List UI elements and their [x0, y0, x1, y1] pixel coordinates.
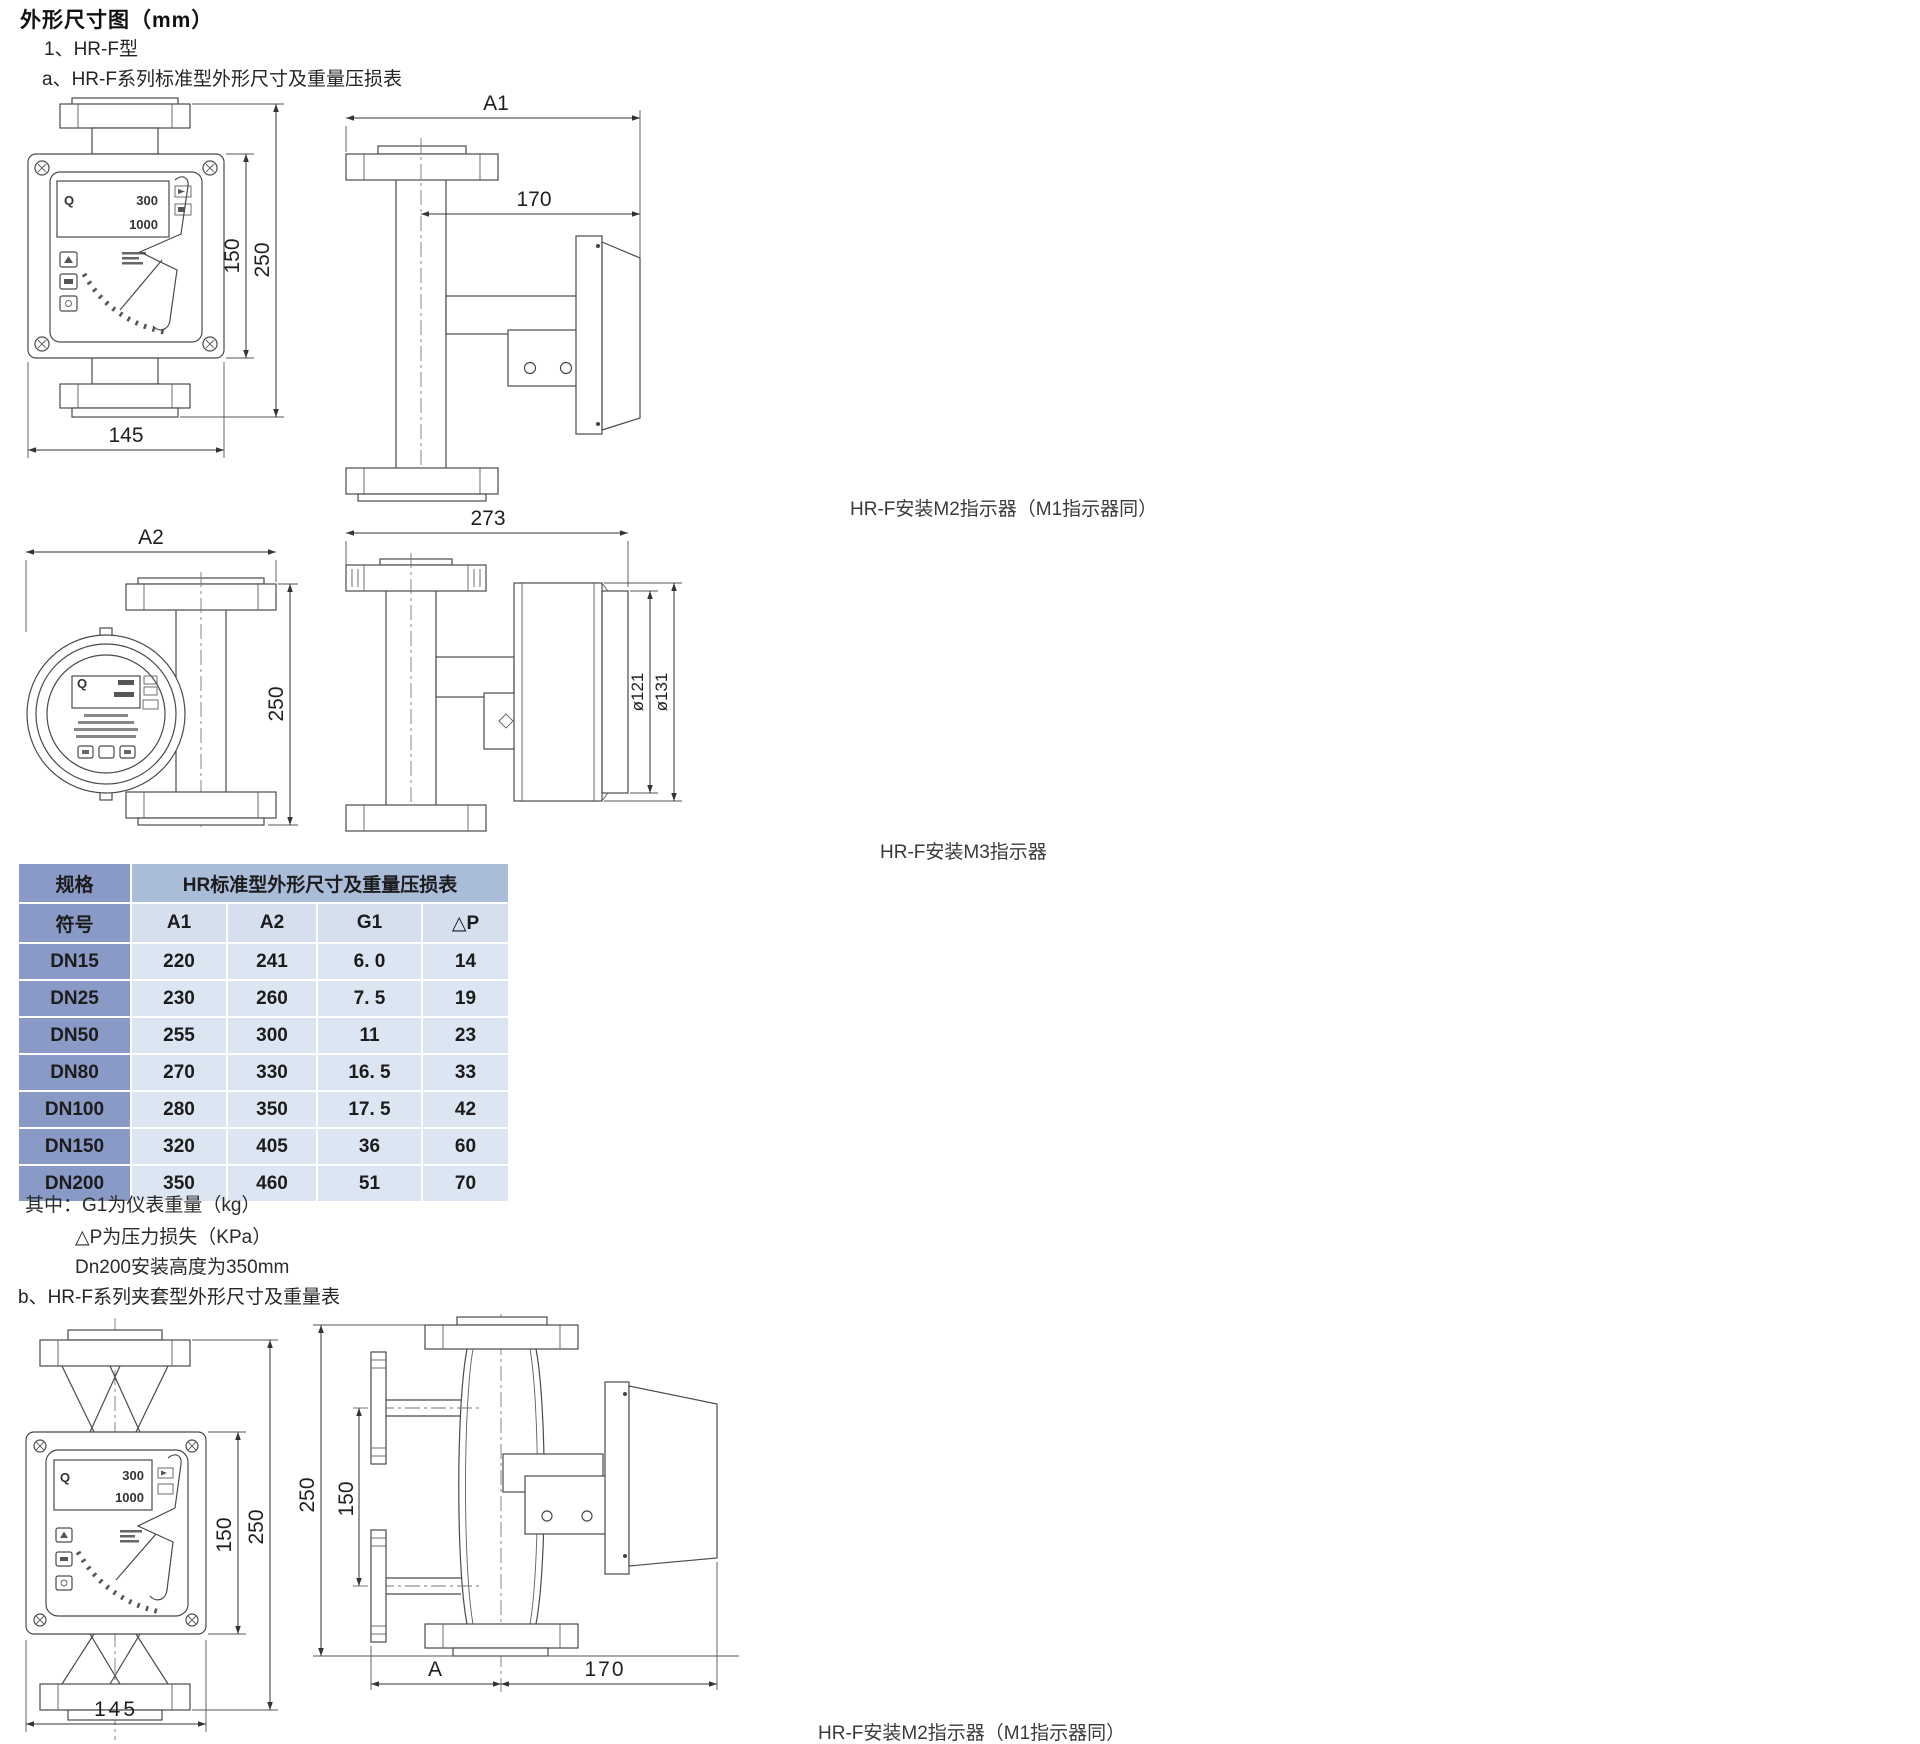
table-row: DN100 280 350 17. 5 42 — [18, 1091, 509, 1128]
dim-150-label: 150 — [335, 1481, 358, 1516]
dim-a1-label: A1 — [483, 92, 509, 115]
bottom-flange — [425, 1624, 578, 1656]
dimension-150: 150 — [208, 1432, 246, 1634]
note-g1: 其中：G1为仪表重量（kg） — [25, 1190, 260, 1217]
subheader-a2: A2 — [227, 903, 317, 943]
drawing-jacket-front-view: Q 300 1000 — [10, 1312, 310, 1744]
page-title: 外形尺寸图（mm） — [20, 4, 213, 34]
display-flow-value: 300 — [122, 1468, 144, 1483]
dim-170-label: 170 — [516, 188, 551, 211]
indicator-bracket — [446, 296, 586, 386]
corner-header-cell: 规格 — [18, 863, 131, 903]
dimension-table: 规格 HR标准型外形尺寸及重量压损表 符号 A1 A2 G1 △P DN15 2… — [17, 862, 510, 1203]
drawing-standard-side-view: A1 170 — [338, 88, 678, 503]
drawing-m3-side-view: 273 — [336, 505, 696, 835]
dim-a-label: A — [428, 1658, 442, 1681]
m2-indicator-housing — [605, 1382, 717, 1574]
caption-m2-jacket: HR-F安装M2指示器（M1指示器同） — [818, 1718, 1125, 1744]
subheader-a1: A1 — [131, 903, 227, 943]
bottom-flange — [126, 792, 276, 825]
table-row: DN150 320 405 36 60 — [18, 1128, 509, 1165]
dim-273-label: 273 — [470, 507, 505, 530]
spec-cell: DN50 — [18, 1017, 131, 1054]
pipe — [386, 553, 436, 829]
m3-indicator-cylinder — [514, 583, 628, 801]
dimension-170: 170 — [421, 188, 640, 214]
dim-dia121-label: ø121 — [628, 673, 647, 712]
note-dp: △P为压力损失（KPa） — [75, 1222, 271, 1249]
display-flow-value: 300 — [136, 193, 158, 208]
table-title-cell: HR标准型外形尺寸及重量压损表 — [131, 863, 509, 903]
table-subheader-row: 符号 A1 A2 G1 △P — [18, 903, 509, 943]
dim-145-label: 145 — [94, 1698, 138, 1721]
spec-cell: DN15 — [18, 943, 131, 980]
spec-cell: DN150 — [18, 1128, 131, 1165]
subheader-dp: △P — [422, 903, 509, 943]
menu-button-icon — [64, 279, 73, 284]
drawing-jacket-side-view: 250 150 A 170 — [295, 1312, 775, 1744]
table-row: DN25 230 260 7. 5 19 — [18, 980, 509, 1017]
table-row: DN50 255 300 11 23 — [18, 1017, 509, 1054]
dim-a2-label: A2 — [138, 526, 164, 549]
spec-cell: DN25 — [18, 980, 131, 1017]
dim-250-label: 250 — [296, 1477, 319, 1512]
dim-250-label: 250 — [251, 242, 274, 277]
dim-dia131-label: ø131 — [652, 673, 671, 712]
table-row: DN15 220 241 6. 0 14 — [18, 943, 509, 980]
bottom-flange — [60, 358, 190, 417]
lcd-q-label: Q — [77, 676, 87, 691]
dim-150-label: 150 — [213, 1517, 236, 1552]
pipe — [396, 138, 446, 500]
top-flange — [346, 146, 498, 180]
spec-cell: DN80 — [18, 1054, 131, 1091]
dim-250-label: 250 — [265, 686, 288, 721]
caption-m3: HR-F安装M3指示器 — [880, 837, 1047, 864]
table-row: DN80 270 330 16. 5 33 — [18, 1054, 509, 1091]
subheader-g1: G1 — [317, 903, 422, 943]
bottom-flange — [346, 805, 486, 831]
drawing-standard-front-view: Q 300 1000 — [10, 92, 300, 482]
top-flange — [60, 98, 190, 154]
m3-indicator-face: Q — [27, 628, 185, 800]
section-a-heading: a、HR-F系列标准型外形尺寸及重量压损表 — [42, 64, 402, 91]
dim-145-label: 145 — [108, 424, 143, 447]
display-q-label: Q — [64, 193, 74, 208]
table-title-row: 规格 HR标准型外形尺寸及重量压损表 — [18, 863, 509, 903]
display-total-value: 1000 — [115, 1490, 144, 1505]
m2-indicator-housing — [576, 236, 640, 434]
upper-jacket-port — [353, 1352, 479, 1464]
drawing-standard-back-view: A2 Q — [12, 522, 302, 837]
display-q-label: Q — [60, 1470, 70, 1485]
bottom-flange — [346, 468, 498, 501]
section-1-heading: 1、HR-F型 — [44, 34, 138, 61]
dimension-250: 250 — [265, 584, 298, 825]
dim-150-label: 150 — [221, 238, 244, 273]
note-dn200: Dn200安装高度为350mm — [75, 1252, 289, 1279]
subheader-symbol: 符号 — [18, 903, 131, 943]
datasheet-page: 外形尺寸图（mm） 1、HR-F型 a、HR-F系列标准型外形尺寸及重量压损表 … — [0, 0, 1920, 1744]
caption-m2-standard: HR-F安装M2指示器（M1指示器同） — [850, 494, 1157, 521]
dimension-150: 150 — [221, 154, 254, 358]
spec-cell: DN100 — [18, 1091, 131, 1128]
top-flange — [346, 559, 486, 591]
top-flange — [425, 1317, 578, 1349]
meter-body — [26, 1432, 206, 1634]
indicator-bracket — [503, 1454, 607, 1534]
dim-250-label: 250 — [245, 1509, 268, 1544]
display-total-value: 1000 — [129, 217, 158, 232]
section-b-heading: b、HR-F系列夹套型外形尺寸及重量表 — [18, 1282, 340, 1309]
dimension-150: 150 — [335, 1408, 359, 1586]
dim-170-label: 170 — [584, 1658, 625, 1681]
